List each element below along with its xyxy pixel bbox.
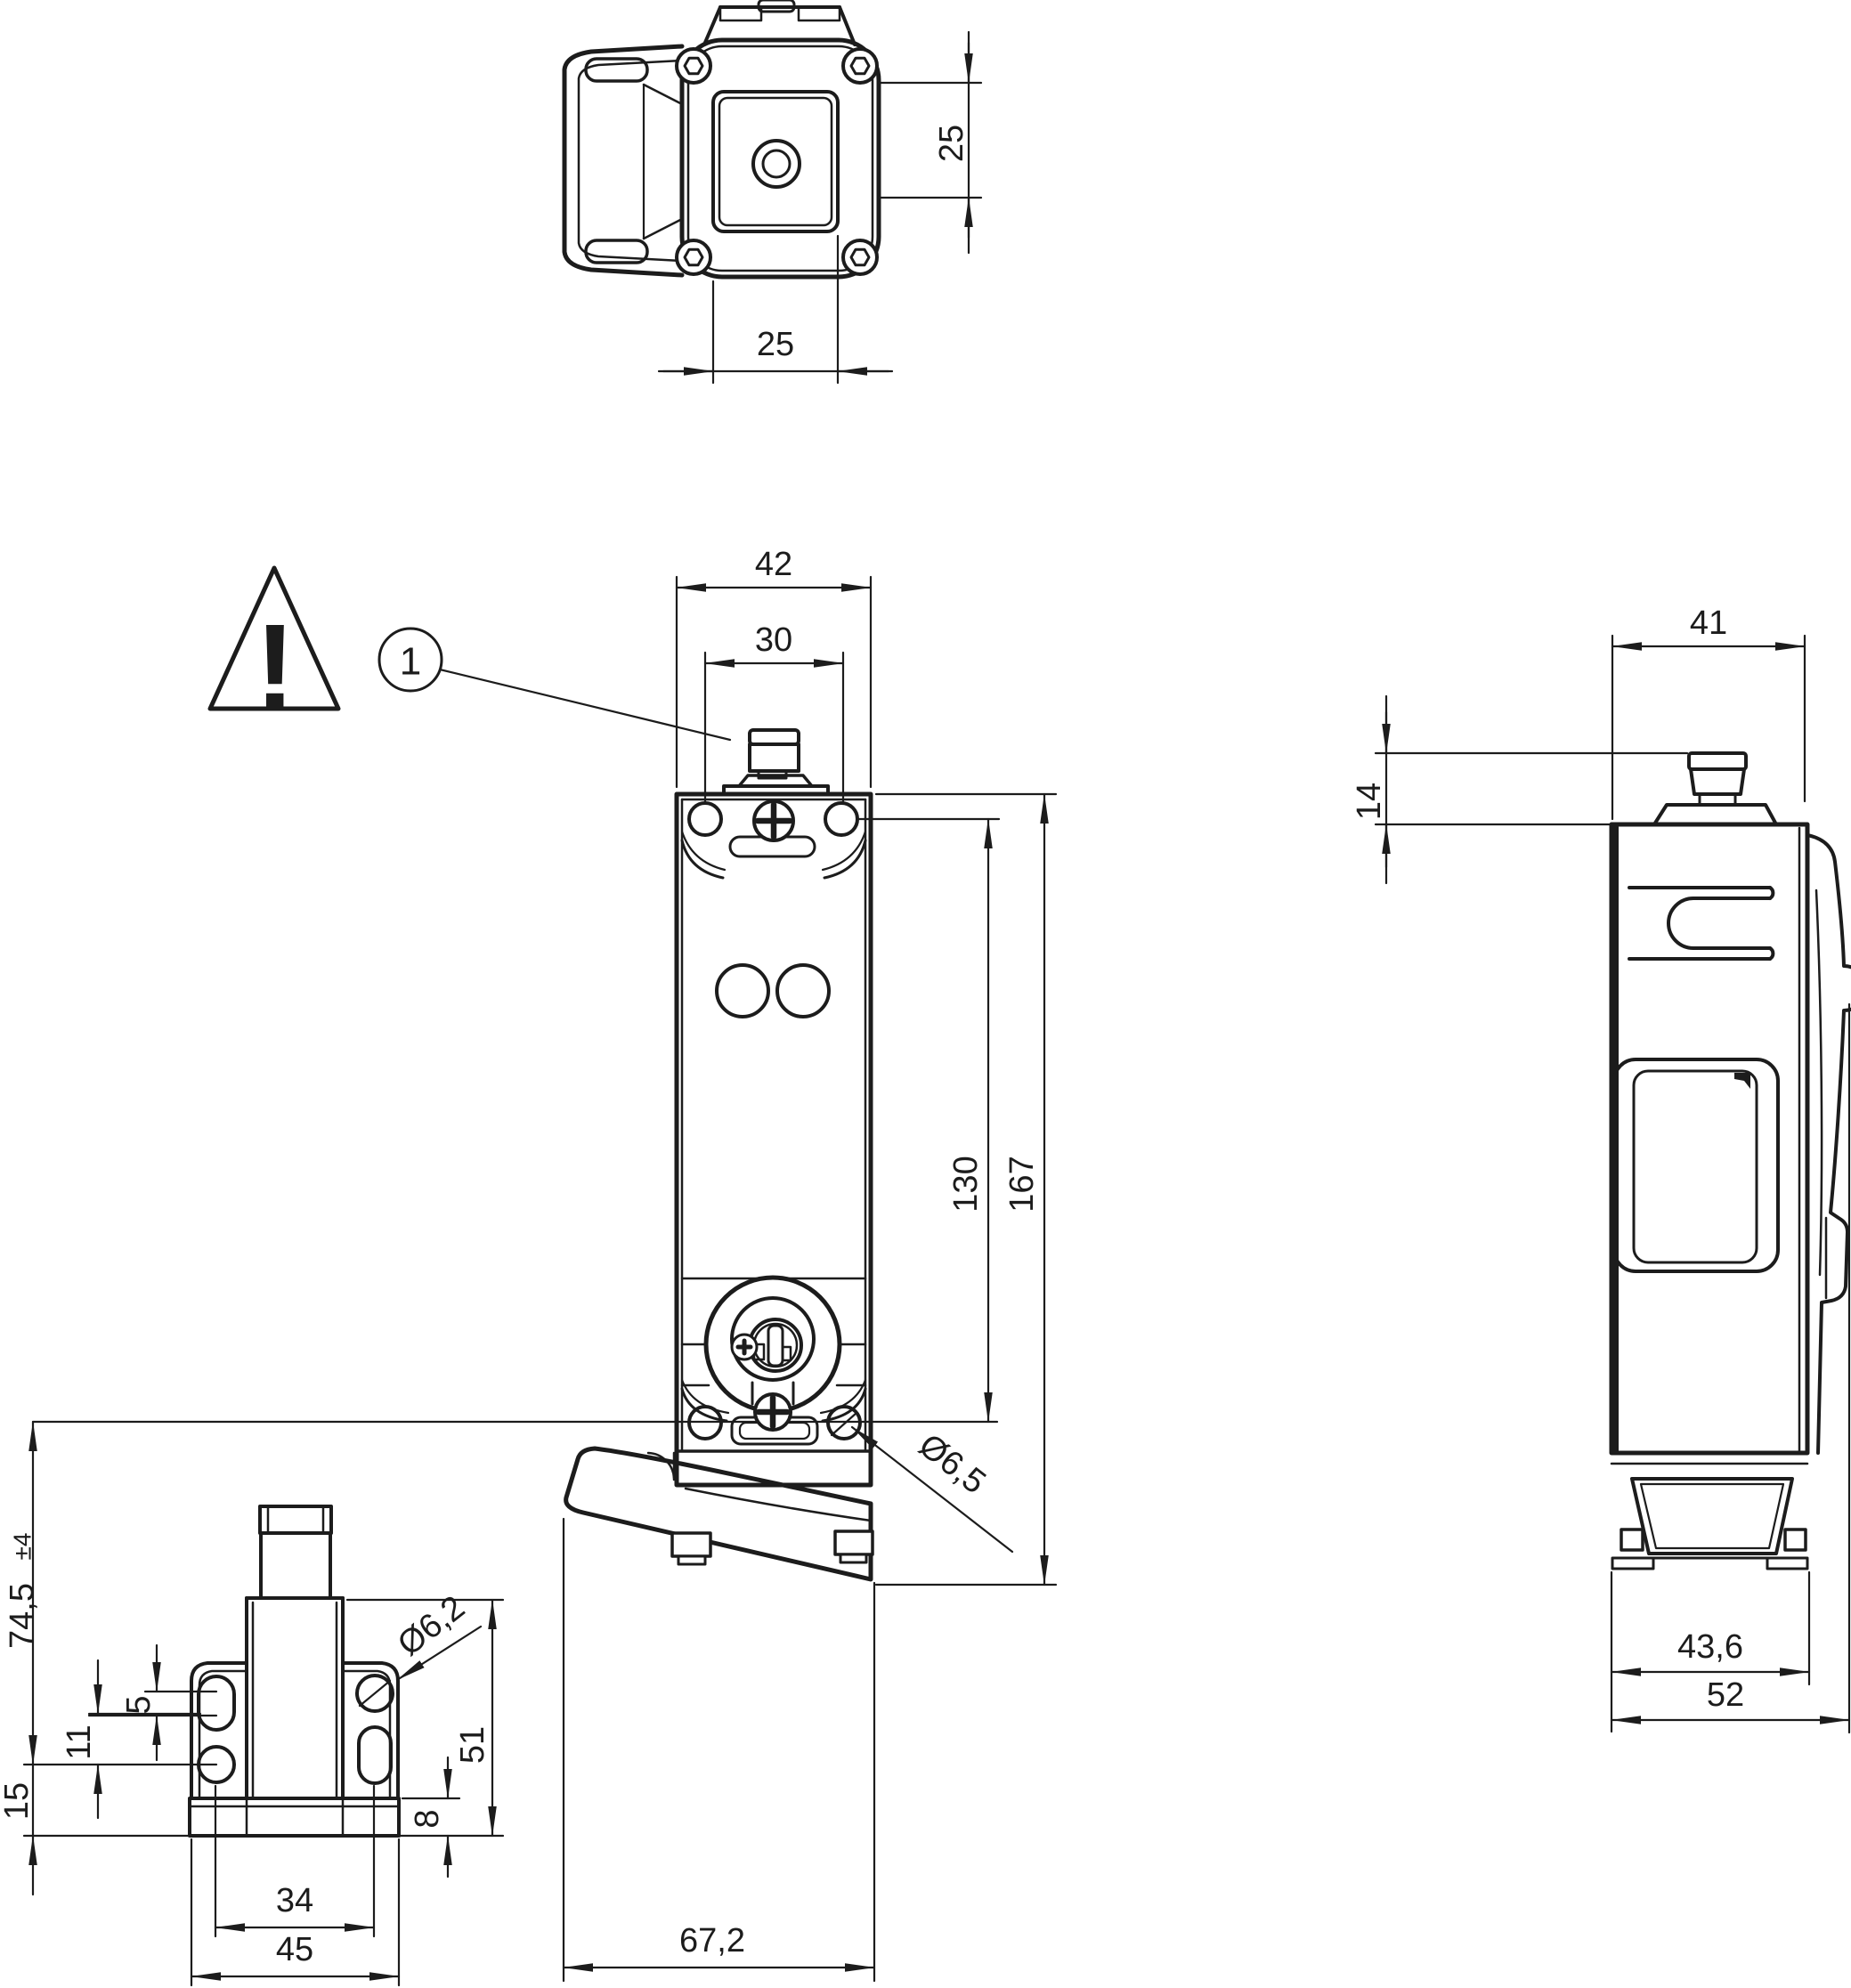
dim-label-11: 11 (61, 1724, 98, 1759)
front-guide-foot (566, 1448, 873, 1579)
side-connector (1654, 753, 1776, 824)
dim-actuator-base-offset: 15 (0, 1765, 503, 1895)
dim-side-depth: 41 (1612, 605, 1805, 819)
dim-label-436: 43,6 (1677, 1628, 1743, 1666)
dim-top-height: 25 (880, 32, 981, 253)
front-view: 42 30 130 167 Ø6,5 67,2 (33, 546, 1056, 1981)
actuator-tongue-tip (260, 1506, 331, 1533)
actuator-body (190, 1506, 399, 1836)
dim-label-5: 5 (120, 1695, 158, 1714)
actuator-view: 74,5 ±4 15 11 5 51 (0, 1422, 503, 1985)
dim-label-130: 130 (947, 1156, 985, 1212)
dim-label-8: 8 (409, 1809, 446, 1828)
top-view-funnel (564, 46, 682, 275)
front-connector (724, 730, 828, 794)
foot-tab-right (835, 1531, 873, 1562)
mounting-hole-top-right (825, 803, 857, 835)
top-cover-screw (754, 801, 793, 840)
panel-corner-mark (1734, 1073, 1750, 1089)
head-center-hole (753, 141, 800, 187)
dim-side-connector-height: 14 (1351, 696, 1687, 883)
bottom-cover-screw (755, 1394, 791, 1430)
drawing-canvas: 25 25 ! 1 (0, 0, 1851, 1988)
warning-exclamation: ! (255, 599, 296, 736)
side-u-slot (1629, 888, 1773, 959)
dim-front-hole-distance: 130 (856, 819, 999, 1422)
dim-label-42: 42 (755, 546, 792, 583)
callouts: ! 1 (210, 568, 730, 740)
dim-label-30: 30 (755, 621, 792, 659)
dim-label-745: 74,5 (4, 1583, 41, 1649)
led-indicator-left (717, 965, 768, 1017)
actuator-slot-right (359, 1727, 391, 1783)
dim-label-52: 52 (1707, 1676, 1744, 1714)
dim-label-51: 51 (454, 1726, 491, 1764)
dim-actuator-hole-spacing: 34 (215, 1786, 374, 1936)
lock-screw-left (732, 1335, 757, 1359)
dim-side-overall-depth: 52 (1612, 1004, 1849, 1732)
dim-label-34: 34 (276, 1882, 313, 1919)
dim-label-167: 167 (1003, 1156, 1041, 1212)
actuator-slot-left (199, 1676, 234, 1730)
side-bracket (1612, 1464, 1807, 1569)
dim-label-45: 45 (276, 1931, 313, 1968)
side-release-lever (1807, 835, 1851, 1453)
led-indicator-right (777, 965, 829, 1017)
side-body (1612, 824, 1851, 1569)
top-view: 25 25 (564, 0, 981, 383)
side-view: 41 14 43,6 52 (1351, 605, 1851, 1732)
dim-actuator-hole-offset: 11 (61, 1660, 200, 1818)
dimension-drawing-svg: 25 25 ! 1 (0, 0, 1851, 1988)
key-slot (768, 1326, 783, 1366)
foot-tab-left (672, 1533, 710, 1564)
item-1-leader-line (440, 669, 730, 740)
actuator-base-plate (190, 1798, 399, 1836)
top-view-head (677, 0, 879, 277)
dim-label-top-width: 25 (757, 326, 794, 363)
lock-mechanism (682, 1278, 865, 1411)
head-insert (713, 92, 838, 231)
dim-label-hole-dia-65: Ø6,5 (912, 1427, 993, 1502)
side-label-panel (1614, 1059, 1778, 1271)
head-corner-screws (677, 49, 877, 274)
dim-label-41: 41 (1690, 605, 1727, 642)
dim-label-672: 67,2 (679, 1922, 745, 1960)
dim-front-overall-width: 67,2 (564, 1519, 874, 1981)
dim-label-top-height: 25 (933, 125, 970, 162)
dim-label-745-tol: ±4 (9, 1533, 37, 1561)
dim-actuator-base-thickness: 8 (402, 1757, 459, 1877)
dim-label-14: 14 (1351, 783, 1388, 820)
item-1-number: 1 (400, 640, 421, 684)
front-body (33, 794, 997, 1485)
mounting-hole-top-left (689, 803, 721, 835)
dim-label-15: 15 (0, 1782, 36, 1820)
dim-actuator-hole-dia: Ø6,2 (360, 1589, 481, 1706)
